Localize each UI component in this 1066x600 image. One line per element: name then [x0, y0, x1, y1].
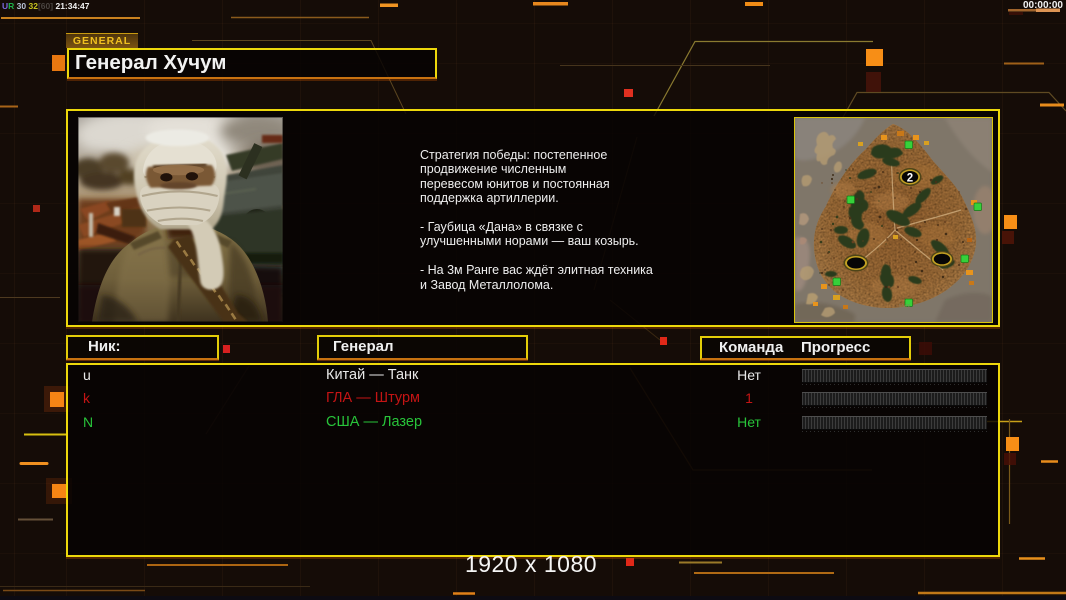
svg-text:MalX: MalX	[899, 304, 911, 310]
svg-text:2: 2	[907, 173, 913, 185]
